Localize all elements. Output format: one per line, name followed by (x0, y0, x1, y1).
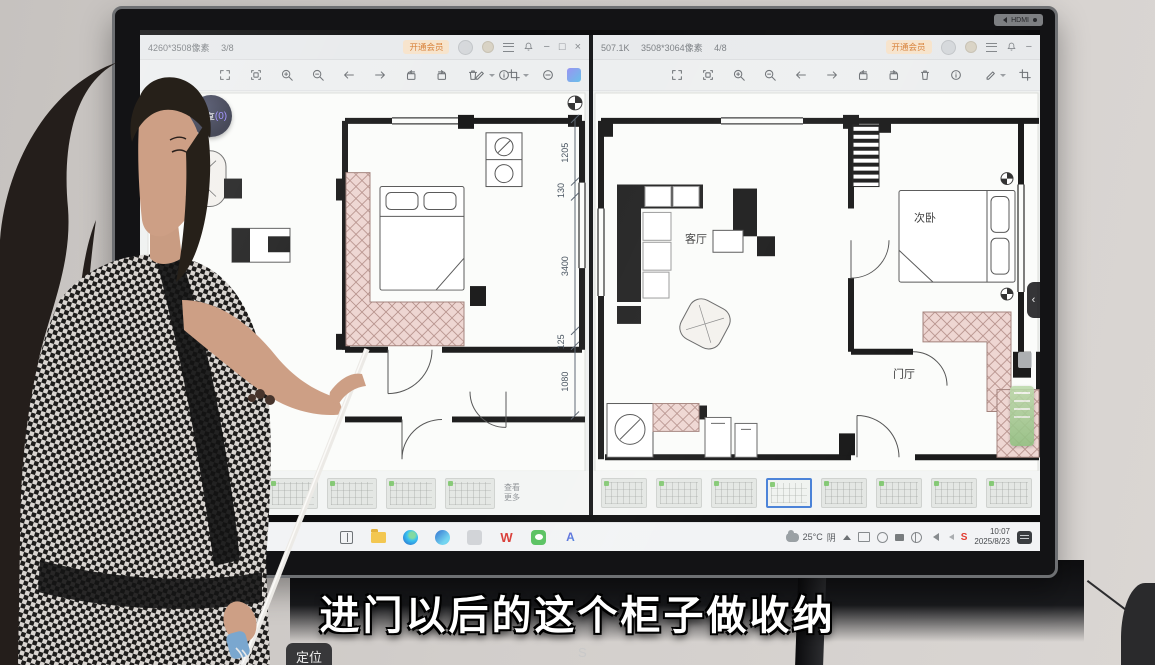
image-resolution: 4260*3508像素 (148, 43, 210, 53)
previous-icon[interactable] (794, 68, 808, 82)
thumbnail[interactable] (711, 478, 757, 508)
edge-browser-icon[interactable] (402, 529, 419, 546)
battery-icon[interactable] (895, 534, 904, 541)
floating-green-widget[interactable] (1010, 386, 1034, 446)
next-icon[interactable] (825, 68, 839, 82)
thumbnail[interactable] (268, 478, 318, 509)
watermark: S (578, 645, 587, 660)
thumbnail[interactable] (876, 478, 922, 508)
fit-screen-icon[interactable] (701, 68, 715, 82)
file-explorer-icon[interactable] (370, 529, 387, 546)
compass-icon (1001, 288, 1013, 300)
floorplan-left: 1205 130 3400 125 1080 (140, 91, 589, 515)
crop-icon[interactable] (507, 68, 529, 82)
washer-stack (486, 133, 522, 187)
record-icon[interactable] (877, 532, 888, 543)
thumbnail[interactable] (601, 478, 647, 508)
weather-widget[interactable]: 25°C 阴 (786, 531, 836, 544)
side-tables (705, 417, 757, 457)
svg-text:次卧: 次卧 (914, 210, 936, 224)
thumbnail[interactable] (386, 478, 436, 509)
hidden-icons-chevron[interactable] (843, 531, 851, 540)
svg-text:3400: 3400 (560, 256, 570, 276)
image-viewer-right: 507.1K 3508*3064像素 4/8 开通会员 − (593, 35, 1040, 515)
zoom-out-icon[interactable] (763, 68, 777, 82)
avatar[interactable] (458, 40, 473, 55)
coin-icon[interactable] (965, 41, 977, 53)
thumbnail[interactable] (986, 478, 1032, 508)
rotate-left-icon[interactable] (856, 68, 870, 82)
thumbnail[interactable] (209, 478, 259, 509)
compass-icon (568, 96, 582, 110)
svg-text:门厅: 门厅 (893, 367, 915, 381)
bed (899, 191, 1015, 283)
view-more-button[interactable]: 查看更多 (504, 483, 520, 502)
svg-text:125: 125 (556, 334, 566, 349)
thumbnail[interactable] (821, 478, 867, 508)
side-panel-toggle[interactable]: ‹ (1027, 282, 1040, 318)
fullscreen-icon[interactable] (670, 68, 684, 82)
hall-cabinet-hatched (653, 404, 699, 432)
menu-icon[interactable] (503, 43, 514, 52)
close-button[interactable]: × (575, 42, 581, 53)
annotate-icon[interactable] (984, 68, 1006, 82)
previous-icon[interactable] (342, 68, 356, 82)
fit-screen-icon[interactable] (249, 68, 263, 82)
menu-icon[interactable] (986, 43, 997, 52)
thumbnail[interactable] (327, 478, 377, 509)
delete-icon[interactable] (918, 68, 932, 82)
interactive-display: HDMI 4260*3508像素 3/8 开通会员 (112, 6, 1058, 578)
image-viewer-left: 4260*3508像素 3/8 开通会员 − □ × (140, 35, 589, 515)
thumbnail-strip-right (593, 471, 1040, 515)
zoom-in-icon[interactable] (280, 68, 294, 82)
task-view-icon[interactable] (338, 529, 355, 546)
vip-button[interactable]: 开通会员 (403, 40, 449, 54)
svg-text:1205: 1205 (560, 143, 570, 163)
annotate-icon[interactable] (473, 68, 495, 82)
avatar[interactable] (941, 40, 956, 55)
display-screen: 4260*3508像素 3/8 开通会员 − □ × (140, 30, 1040, 551)
wechat-icon[interactable] (530, 529, 547, 546)
thumbnail[interactable] (931, 478, 977, 508)
compass-icon (1001, 173, 1013, 185)
viewer-toolbar-right (593, 60, 1040, 91)
zoom-in-icon[interactable] (732, 68, 746, 82)
page-indicator: 4/8 (714, 43, 727, 53)
svg-text:130: 130 (556, 183, 566, 198)
power-led-icon (1033, 18, 1037, 22)
bed (380, 187, 464, 291)
floorplan-right: 客厅 次卧 门厅 (593, 91, 1040, 515)
thumbnail[interactable] (445, 478, 495, 509)
laundry-appliance (607, 404, 653, 458)
notification-center-icon[interactable] (1017, 531, 1032, 544)
fullscreen-icon[interactable] (218, 68, 232, 82)
striped-wardrobe (853, 125, 879, 187)
thumbnail-selected[interactable] (766, 478, 812, 508)
zoom-out-icon[interactable] (311, 68, 325, 82)
canvas-right[interactable]: 客厅 次卧 门厅 (593, 91, 1040, 515)
volume-icon[interactable] (946, 534, 954, 540)
maximize-button[interactable]: □ (559, 42, 566, 53)
settings-icon[interactable] (911, 532, 922, 543)
svg-text:客厅: 客厅 (685, 231, 707, 245)
volume-mute-icon[interactable] (929, 533, 939, 541)
fx-member-badge[interactable]: 飞享(0) (190, 95, 232, 137)
antivirus-icon[interactable]: S (961, 532, 968, 543)
round-table (209, 385, 251, 427)
coffee-table (713, 230, 743, 252)
file-size: 507.1K (601, 43, 630, 53)
page-indicator: 3/8 (221, 43, 234, 53)
input-arrow-icon (1000, 17, 1007, 23)
bell-icon[interactable] (523, 41, 534, 54)
titlebar-right[interactable]: 507.1K 3508*3064像素 4/8 开通会员 − (593, 35, 1040, 60)
minimize-button[interactable]: − (1026, 42, 1032, 53)
more-icon[interactable] (541, 68, 555, 82)
next-icon[interactable] (373, 68, 387, 82)
rotate-left-icon[interactable] (404, 68, 418, 82)
coin-icon[interactable] (482, 41, 494, 53)
info-icon[interactable] (949, 68, 963, 82)
photoshop-icon[interactable] (466, 529, 483, 546)
vip-button[interactable]: 开通会员 (886, 40, 932, 54)
image-resolution: 3508*3064像素 (641, 43, 703, 53)
hdmi-label: HDMI (1011, 17, 1029, 24)
svg-text:1080: 1080 (560, 372, 570, 392)
paint-app-icon[interactable] (434, 529, 451, 546)
rotate-right-icon[interactable] (887, 68, 901, 82)
viewer-toolbar-left (140, 60, 589, 91)
lanyard (236, 648, 247, 665)
side-sticker (1018, 352, 1032, 368)
minimize-button[interactable]: − (543, 42, 549, 53)
rotate-right-icon[interactable] (435, 68, 449, 82)
bezel-input-label: HDMI (994, 14, 1043, 26)
ai-edit-icon[interactable] (567, 68, 581, 82)
hair-back (0, 62, 118, 665)
location-badge: 定位 (286, 643, 332, 665)
thumbnail-strip-left: 查看更多 (140, 471, 589, 515)
thumbnail[interactable] (656, 478, 702, 508)
cloud-icon (786, 533, 799, 542)
windows-taskbar: W A 25°C 阴 S (140, 522, 1040, 551)
bell-icon[interactable] (1006, 41, 1017, 54)
crop-icon[interactable] (1018, 68, 1032, 82)
titlebar-left[interactable]: 4260*3508像素 3/8 开通会员 − □ × (140, 35, 589, 60)
scene: HDMI 4260*3508像素 3/8 开通会员 (0, 0, 1155, 665)
video-subtitle: 进门以后的这个柜子做收纳 (0, 583, 1155, 641)
canvas-left[interactable]: 飞享(0) (140, 91, 589, 515)
wps-icon[interactable]: W (498, 529, 515, 546)
ai-assistant-icon[interactable]: A (562, 529, 579, 546)
clock[interactable]: 10:072025/8/23 (974, 527, 1010, 547)
cast-icon[interactable] (858, 532, 870, 542)
